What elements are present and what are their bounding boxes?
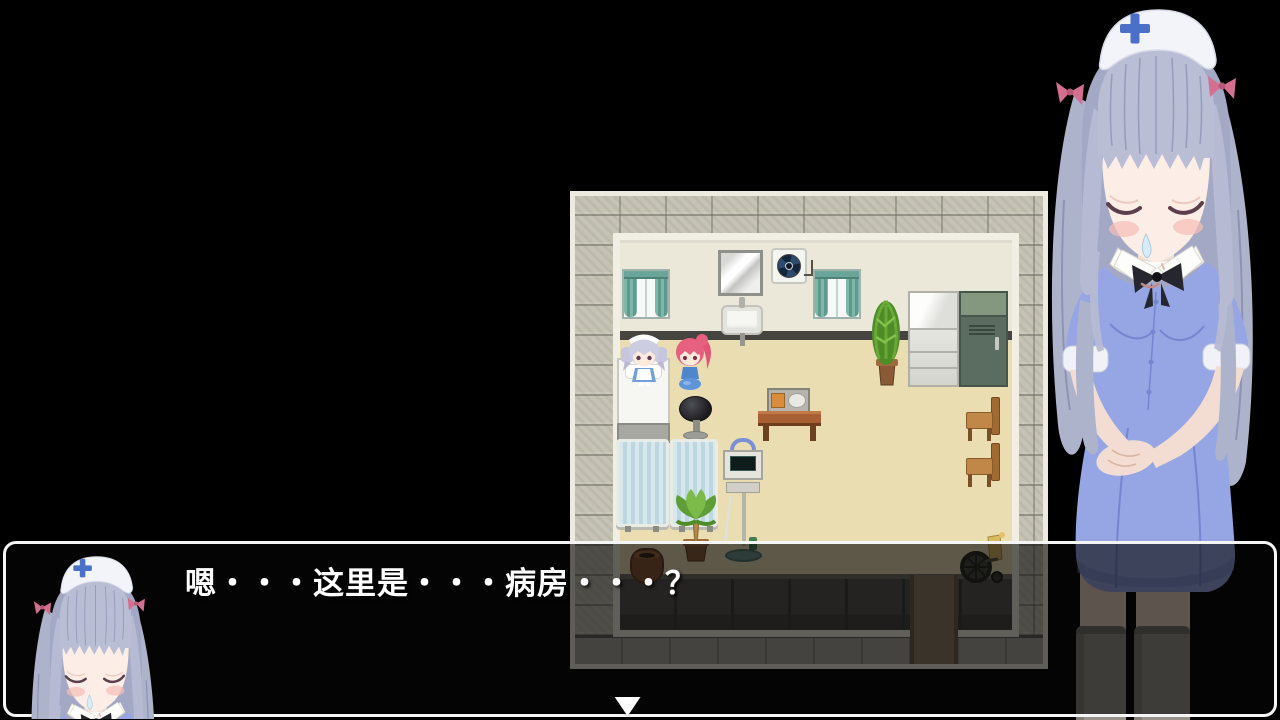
locker-top — [961, 293, 1006, 317]
fridge-shelf-line — [910, 351, 957, 353]
fridge-glare — [910, 293, 957, 330]
ventilation-fan — [771, 248, 807, 284]
curtain-valance — [624, 271, 668, 279]
window-with-curtains — [622, 269, 670, 319]
refrigerator — [908, 291, 959, 387]
game-screen: 嗯・・・这里是・・・病房・・・？ ▼ — [0, 0, 1280, 720]
continue-arrow-icon[interactable]: ▼ — [615, 690, 641, 719]
curtain-left — [624, 277, 637, 317]
stool-seat — [679, 396, 712, 422]
fan-hub — [785, 262, 793, 270]
maid-silver-hair-sprite[interactable] — [621, 329, 667, 391]
girl-pink-hair-sprite[interactable] — [671, 331, 713, 393]
wooden-chair — [963, 443, 1003, 487]
tall-potted-plant — [865, 293, 907, 388]
wash-sink — [721, 305, 763, 335]
curtain-left — [815, 277, 828, 317]
locker-vents — [969, 325, 995, 335]
wall-mirror — [718, 250, 763, 296]
wooden-chair — [963, 397, 1003, 441]
curtain-right — [846, 277, 859, 317]
monitor-pole — [742, 493, 746, 546]
green-locker — [959, 291, 1008, 387]
dialogue-text: 嗯・・・这里是・・・病房・・・？ — [185, 558, 1185, 603]
privacy-screen — [616, 439, 669, 527]
monitor-control-panel — [726, 482, 760, 493]
monitor-screen — [730, 456, 756, 471]
table-leg — [810, 425, 816, 441]
locker-handle — [995, 337, 999, 350]
fan-cord — [804, 260, 813, 276]
supply-rack — [767, 388, 810, 413]
window-with-curtains — [813, 269, 861, 319]
curtain-valance — [815, 271, 859, 279]
curtain-right — [655, 277, 668, 317]
table-top — [758, 411, 821, 426]
monitor-box — [723, 450, 763, 480]
iv-tube — [724, 496, 731, 540]
round-stool — [677, 396, 714, 440]
supply-table — [758, 388, 821, 441]
nurse-portrait — [24, 553, 172, 719]
fridge-shelf-line — [910, 367, 957, 369]
